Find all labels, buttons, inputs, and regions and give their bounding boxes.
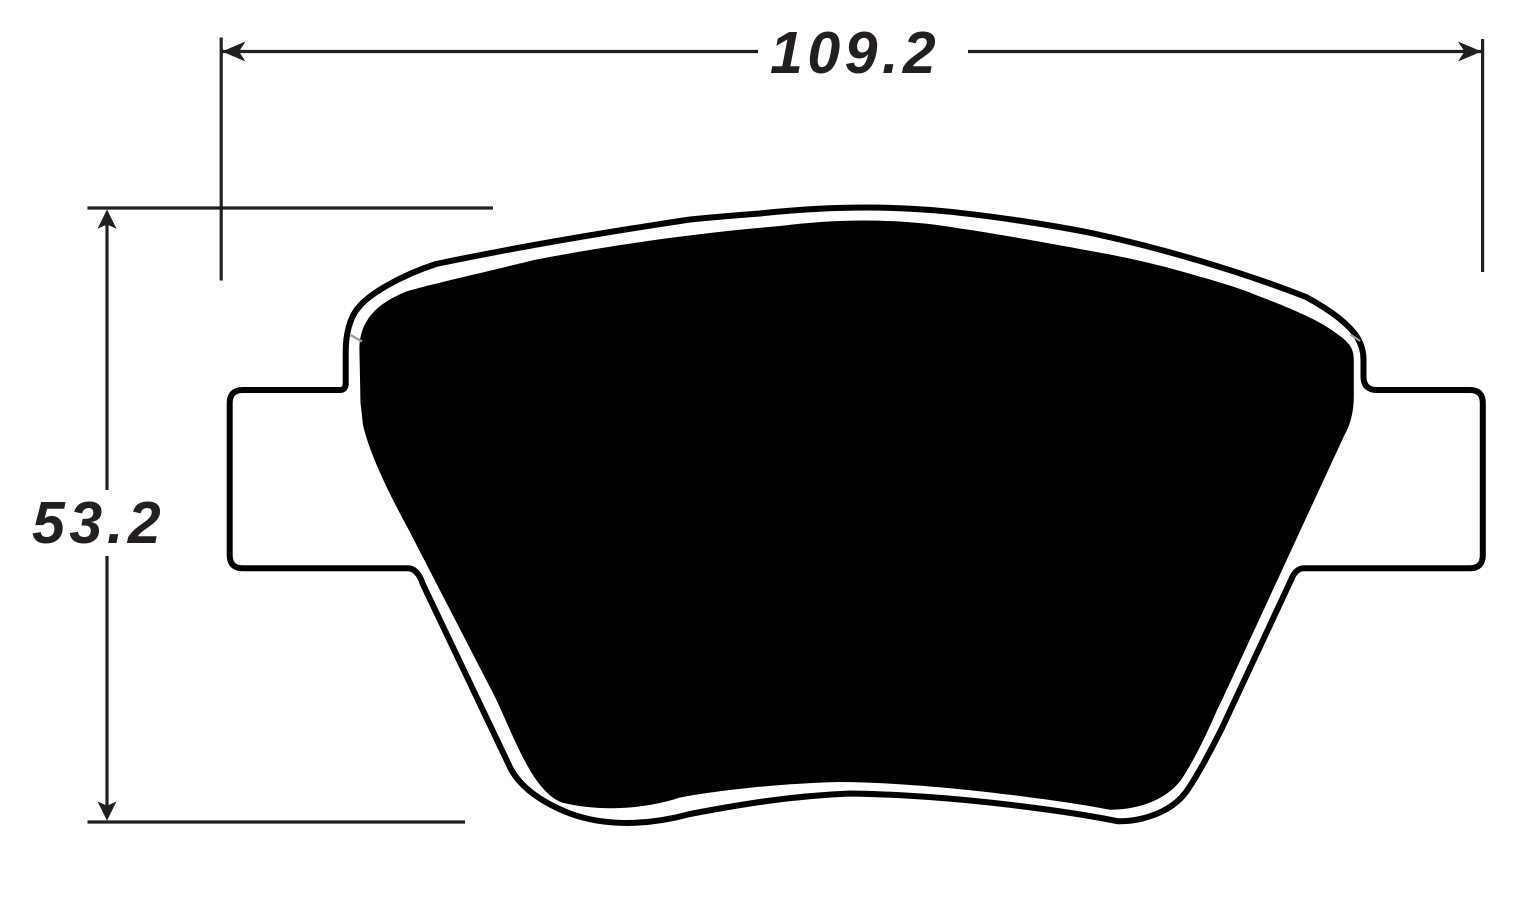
svg-text:53.2: 53.2 xyxy=(32,490,165,556)
svg-text:109.2: 109.2 xyxy=(770,20,940,86)
